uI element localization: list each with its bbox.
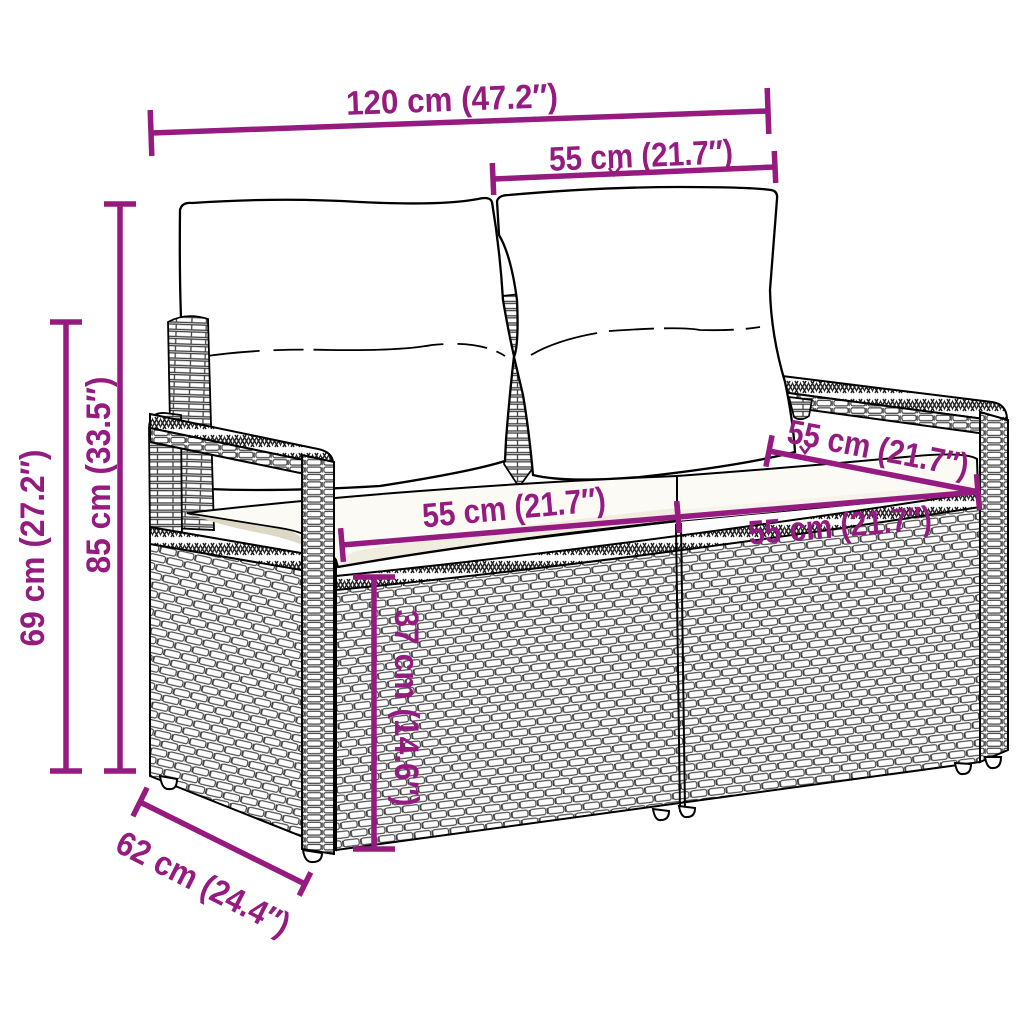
svg-text:55 cm (21.7″): 55 cm (21.7″) — [548, 133, 733, 179]
svg-text:120 cm (47.2″): 120 cm (47.2″) — [345, 77, 558, 123]
svg-text:37 cm (14.6″): 37 cm (14.6″) — [387, 610, 425, 807]
svg-text:69 cm (27.2″): 69 cm (27.2″) — [14, 450, 52, 647]
svg-text:85 cm (33.5″): 85 cm (33.5″) — [80, 377, 118, 574]
